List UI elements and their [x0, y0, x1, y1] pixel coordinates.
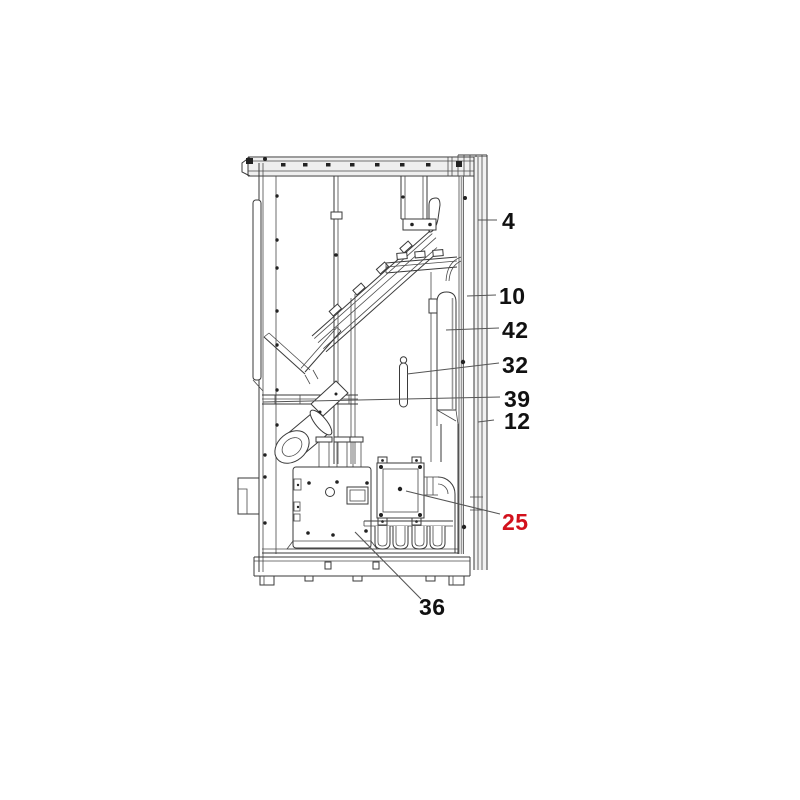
- feet: [260, 576, 464, 585]
- diagram-canvas: [0, 0, 800, 800]
- deflector-chute: [312, 231, 437, 352]
- callout-label-10: 10: [499, 285, 526, 308]
- callout-label-25: 25: [502, 511, 529, 534]
- chamber-floor: [262, 549, 458, 553]
- leader-39: [263, 397, 500, 402]
- heat-exchanger-fins: [364, 521, 453, 549]
- flue-outlet-duct: [401, 176, 440, 232]
- callout-label-4: 4: [502, 210, 515, 233]
- auger-mount-plate: [311, 381, 348, 416]
- motor-studs: [316, 437, 363, 467]
- control-box: [287, 467, 377, 549]
- callout-label-32: 32: [502, 354, 529, 377]
- leader-10: [467, 295, 496, 296]
- chute-baffle-tabs: [329, 241, 412, 316]
- callout-label-12: 12: [504, 410, 531, 433]
- fan-motor-box: [377, 457, 424, 525]
- diagram-page: 4 10 42 32 39 12 25 36: [0, 0, 800, 800]
- auger-assembly: [268, 381, 348, 470]
- base-plinth: [254, 557, 470, 585]
- left-side-panel: [238, 163, 279, 572]
- callout-label-42: 42: [502, 319, 529, 342]
- flue-pipe: [429, 292, 458, 554]
- auger-motor-flange: [268, 424, 315, 470]
- callout-label-36: 36: [419, 596, 446, 619]
- top-rail: [242, 155, 487, 176]
